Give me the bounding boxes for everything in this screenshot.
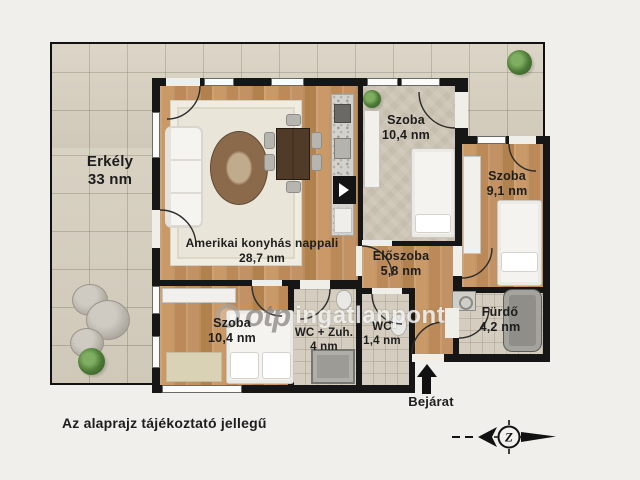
entrance-label: Bejárat — [398, 394, 464, 410]
room-label-szoba-jobb: Szoba 9,1 nm — [477, 169, 537, 200]
room-label-nappali: Amerikai konyhás nappali 28,7 nm — [165, 236, 359, 265]
compass-icon: Z — [450, 418, 566, 454]
room-label-wc-zuh: WC + Zuh. 4 nm — [288, 326, 360, 354]
room-label-szoba-felso: Szoba 10,4 nm — [374, 113, 438, 144]
disclaimer-text: Az alaprajz tájékoztató jellegű — [62, 415, 302, 432]
room-label-wc: WC 1,4 nm — [356, 320, 408, 348]
entrance-arrow-icon — [417, 364, 437, 394]
room-label-eloszoba: Előszoba 5,8 nm — [360, 249, 442, 280]
floor-plan: otp ingatlanpont Erkély 33 nm Amerikai k… — [0, 0, 640, 480]
compass-letter: Z — [504, 430, 513, 445]
room-label-szoba-also: Szoba 10,4 nm — [196, 316, 268, 347]
room-label-furdo: Fürdő 4,2 nm — [468, 305, 532, 336]
room-label-erkely: Erkély 33 nm — [68, 153, 152, 190]
